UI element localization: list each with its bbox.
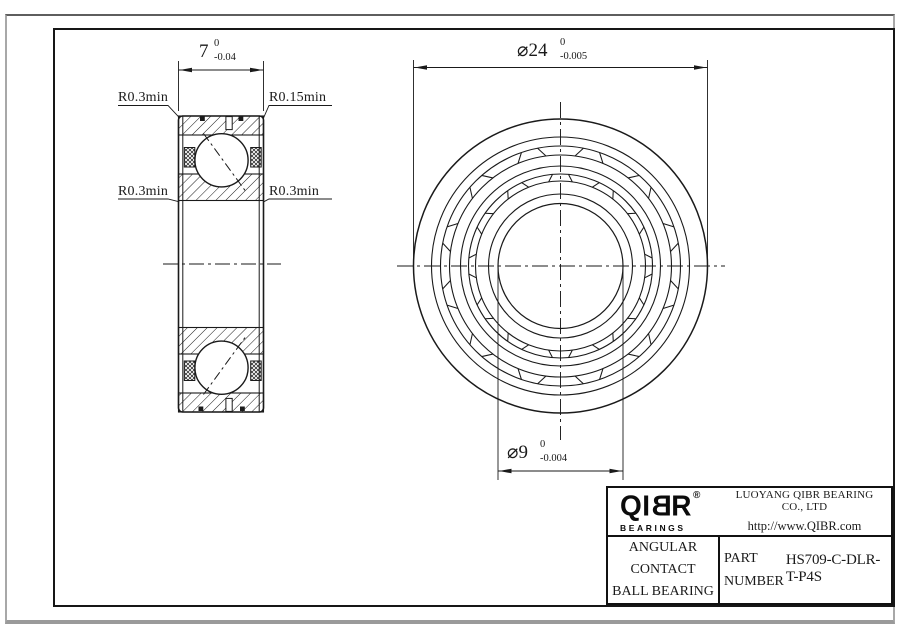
counterbore-groove-top [226,117,232,130]
cage-pocket-edge [482,175,493,178]
cage-pocket-edge [592,345,599,350]
cage-pocket-edge [649,334,652,345]
cage-pocket-edge [469,274,476,278]
mark-bottom-left [199,407,204,412]
qibr-logo-text: QIBR [620,489,692,522]
cage-pocket-edge [469,254,476,258]
mark-top-left [200,117,205,122]
logo-suffix: R [671,489,692,521]
leader-mid-left [118,199,179,202]
cage-pocket-edge [538,148,546,156]
cage-pocket-edge [645,274,652,278]
cage-pocket-edge [575,376,583,384]
company-website: http://www.QIBR.com [724,519,885,534]
cage-pocket-edge [470,187,473,198]
cage-pocket-edge [443,243,451,251]
cage-pocket-edge [569,174,573,181]
cage-pocket-edge [549,350,553,357]
cage-pocket-edge [549,174,553,181]
leader-mid-right [264,199,332,202]
bore-dim-value: ⌀9 [507,443,528,462]
cage-pocket-edge [628,354,639,357]
cage-pocket-edge [639,227,644,234]
bore-arrow-right [610,469,623,474]
cage-pocket-edge [477,298,482,305]
title-block: QIBR ® BEARINGS LUOYANG QIBR BEARING CO.… [606,486,893,605]
cage-section-top-left [184,148,195,168]
cage-pocket-edge [639,298,644,305]
cage-pocket-edge [671,280,679,288]
radius-label-top-left: R0.3min [118,91,168,105]
cage-pocket-edge [470,334,473,345]
radius-label-mid-left: R0.3min [118,185,168,199]
front-view [397,60,725,480]
cage-pocket-edge [649,187,652,198]
cage-pocket-edge [671,243,679,251]
title-block-top-row: QIBR ® BEARINGS LUOYANG QIBR BEARING CO.… [608,488,891,535]
leader-top-right [264,106,332,118]
cage-pocket-edge [443,280,451,288]
cage-pocket-edge [645,254,652,258]
logo-prefix: QI [620,489,651,521]
part-label-line1: PART [724,547,784,570]
part-number-cell: PART NUMBER HS709-C-DLR-T-P4S [720,537,891,603]
cage-pocket-edge [628,175,639,178]
od-dim-upper-tolerance: 0 [560,38,565,49]
title-block-bottom-row: ANGULAR CONTACT BALL BEARING PART NUMBER… [608,535,891,603]
leader-top-left [118,106,179,118]
company-name: LUOYANG QIBR BEARING CO., LTD [724,489,885,513]
od-dim-lower-tolerance: -0.005 [560,52,587,63]
mark-bottom-right [240,407,245,412]
outer-ring-top-section [179,116,264,135]
width-dim-lower-tolerance: -0.04 [214,53,236,64]
mark-top-right [239,117,244,122]
cage-pocket-edge [477,227,482,234]
od-dim-value: ⌀24 [517,41,547,60]
part-number-label: PART NUMBER [724,547,784,593]
logo-subtitle: BEARINGS [620,523,724,533]
bore-dim-upper-tolerance: 0 [540,440,545,451]
cage-pocket-edge [522,183,529,188]
cage-pocket-edge [592,183,599,188]
product-type-cell: ANGULAR CONTACT BALL BEARING [608,537,720,603]
width-arrow-right [250,68,263,73]
cage-pocket-edge [575,148,583,156]
part-label-line2: NUMBER [724,570,784,593]
radius-label-top-right: R0.15min [269,91,326,105]
cage-pocket-edge [522,345,529,350]
radius-label-mid-right: R0.3min [269,185,319,199]
cage-pocket-edge [538,376,546,384]
counterbore-groove-bottom [226,398,232,411]
bore-dim-lower-tolerance: -0.004 [540,454,567,465]
section-view [118,61,332,412]
product-type-line1: ANGULAR CONTACT [608,537,718,581]
cage-section-bottom-left [184,361,195,381]
company-info: LUOYANG QIBR BEARING CO., LTD http://www… [724,489,891,534]
ball-top [195,134,248,187]
outer-ring-bottom-section [179,393,264,412]
ball-bottom [195,341,248,394]
width-dim-value: 7 [199,42,209,61]
width-arrow-left [180,68,193,73]
part-number-value: HS709-C-DLR-T-P4S [786,552,891,586]
bore-arrow-left [499,469,512,474]
registered-trademark-icon: ® [693,490,700,501]
logo-mirrored-b: B [651,489,672,522]
od-arrow-right [694,65,707,70]
width-dim-upper-tolerance: 0 [214,39,219,50]
product-type-line2: BALL BEARING [612,581,714,603]
cage-pocket-edge [482,354,493,357]
od-arrow-left [415,65,428,70]
drawing-page: 7 0 -0.04 R0.3min R0.15min R0.3min R0.3m… [0,0,900,636]
qibr-logo-wordmark: QIBR ® [620,490,724,522]
qibr-logo: QIBR ® BEARINGS [608,490,724,533]
cage-pocket-edge [569,350,573,357]
